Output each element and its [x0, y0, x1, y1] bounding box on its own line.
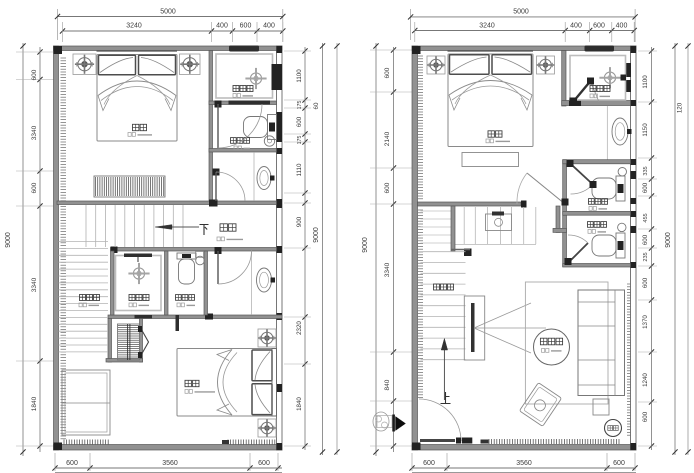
svg-text:60: 60	[313, 102, 320, 109]
svg-text:3240: 3240	[479, 23, 495, 30]
svg-text:9000: 9000	[665, 232, 672, 248]
svg-text:600: 600	[593, 23, 605, 30]
svg-text:600: 600	[642, 277, 649, 288]
svg-text:1110: 1110	[296, 163, 303, 176]
svg-text:600: 600	[296, 116, 303, 127]
svg-text:600: 600	[642, 411, 649, 422]
svg-text:600: 600	[613, 460, 625, 467]
svg-text:1100: 1100	[296, 69, 303, 83]
svg-text:600: 600	[66, 460, 78, 467]
svg-text:900: 900	[296, 216, 303, 227]
svg-text:1150: 1150	[642, 123, 649, 137]
svg-text:400: 400	[216, 23, 228, 30]
svg-text:600: 600	[31, 182, 38, 193]
svg-text:9000: 9000	[362, 237, 369, 253]
svg-text:400: 400	[616, 23, 628, 30]
svg-text:3560: 3560	[516, 460, 532, 467]
svg-text:3240: 3240	[126, 23, 142, 30]
svg-text:1840: 1840	[296, 397, 303, 411]
svg-text:175: 175	[297, 136, 303, 145]
svg-text:1840: 1840	[31, 396, 38, 411]
svg-text:3340: 3340	[31, 125, 38, 140]
svg-text:3340: 3340	[31, 277, 38, 292]
svg-text:3560: 3560	[162, 460, 178, 467]
svg-text:175: 175	[297, 101, 303, 110]
svg-text:1240: 1240	[642, 373, 649, 387]
svg-text:400: 400	[570, 23, 582, 30]
svg-text:600: 600	[384, 182, 391, 193]
svg-text:600: 600	[642, 234, 649, 245]
svg-text:600: 600	[384, 67, 391, 78]
svg-text:335: 335	[643, 166, 649, 175]
svg-text:2320: 2320	[296, 321, 303, 335]
svg-text:1100: 1100	[642, 75, 649, 89]
svg-text:600: 600	[31, 69, 38, 80]
svg-text:120: 120	[677, 102, 684, 113]
svg-text:840: 840	[384, 379, 391, 390]
svg-text:3340: 3340	[384, 262, 391, 277]
svg-text:400: 400	[263, 23, 275, 30]
svg-text:2140: 2140	[384, 131, 391, 146]
svg-text:5000: 5000	[513, 9, 529, 16]
svg-text:455: 455	[643, 213, 649, 222]
svg-text:1370: 1370	[642, 315, 649, 329]
svg-text:600: 600	[258, 460, 270, 467]
svg-text:9000: 9000	[313, 227, 320, 243]
svg-text:5000: 5000	[160, 9, 176, 16]
svg-text:600: 600	[423, 460, 435, 467]
svg-text:600: 600	[240, 23, 252, 30]
svg-text:600: 600	[642, 182, 649, 193]
svg-text:235: 235	[643, 252, 649, 261]
svg-text:9000: 9000	[5, 232, 12, 248]
